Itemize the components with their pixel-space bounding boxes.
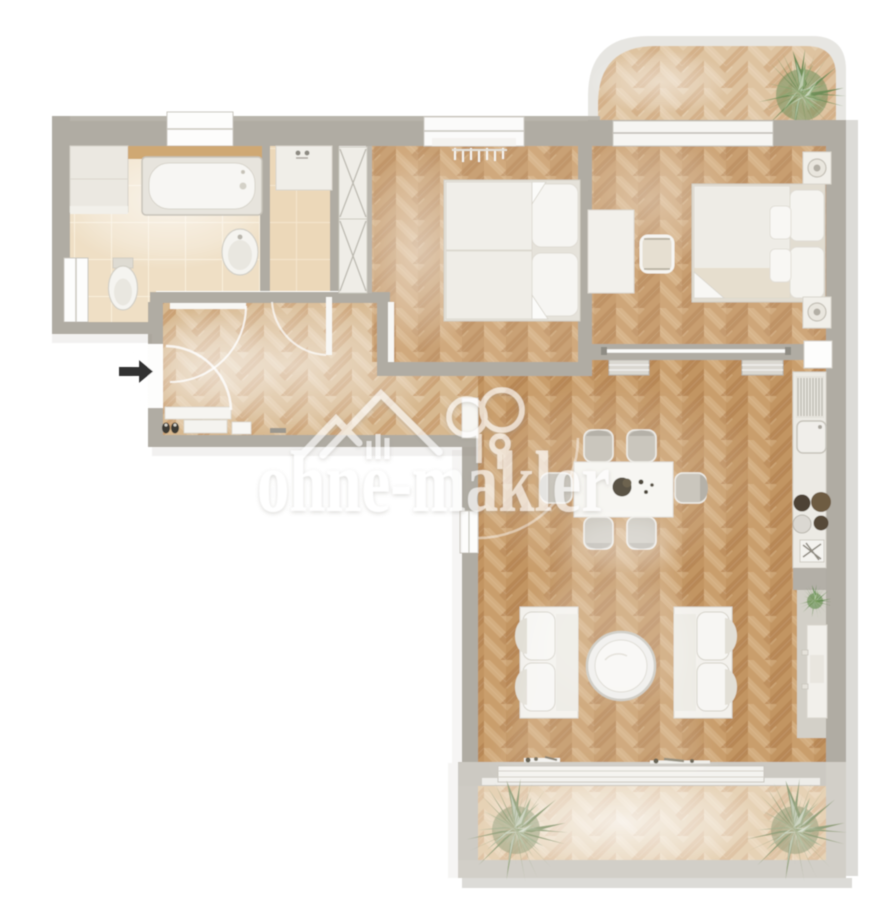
svg-text:ohne-makler: ohne-makler	[257, 433, 610, 530]
